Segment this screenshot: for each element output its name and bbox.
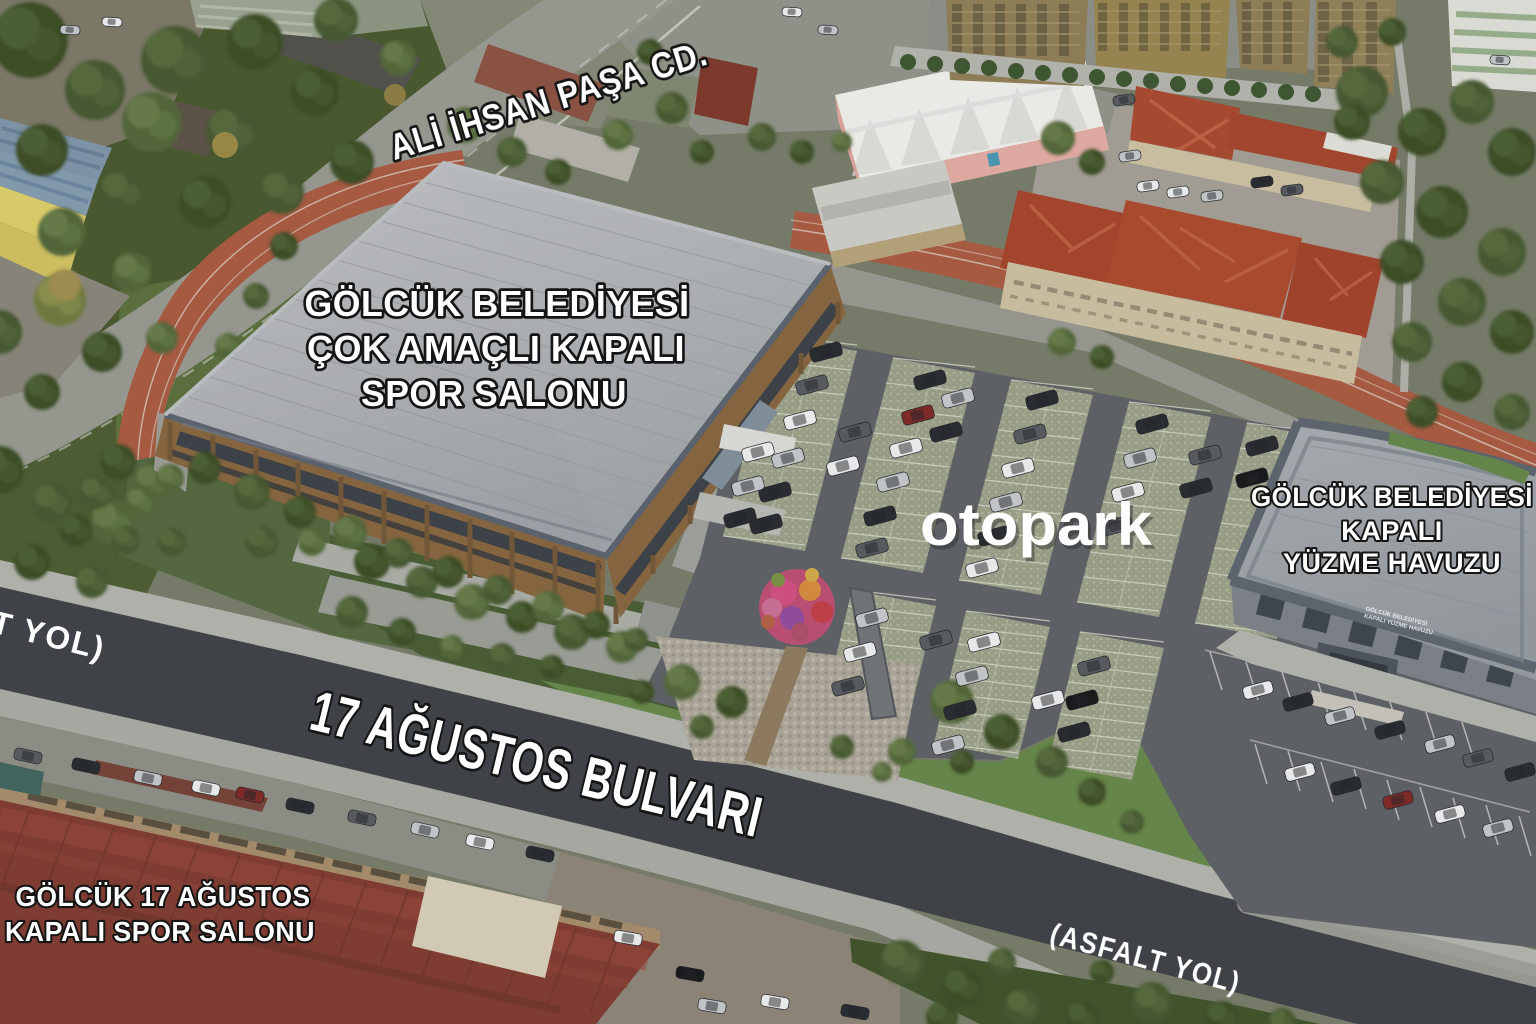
svg-text:SPOR SALONU: SPOR SALONU <box>361 373 627 414</box>
svg-text:GÖLCÜK 17 AĞUSTOS: GÖLCÜK 17 AĞUSTOS <box>16 881 311 912</box>
svg-text:otopark: otopark <box>920 491 1153 558</box>
svg-text:GÖLCÜK BELEDİYESİ: GÖLCÜK BELEDİYESİ <box>1251 482 1533 512</box>
svg-text:ÇOK AMAÇLI KAPALI: ÇOK AMAÇLI KAPALI <box>307 328 685 369</box>
svg-text:YÜZME HAVUZU: YÜZME HAVUZU <box>1283 548 1501 578</box>
svg-text:KAPALI: KAPALI <box>1341 516 1443 546</box>
svg-text:KAPALI SPOR SALONU: KAPALI SPOR SALONU <box>5 916 315 947</box>
svg-text:GÖLCÜK BELEDİYESİ: GÖLCÜK BELEDİYESİ <box>305 283 690 324</box>
